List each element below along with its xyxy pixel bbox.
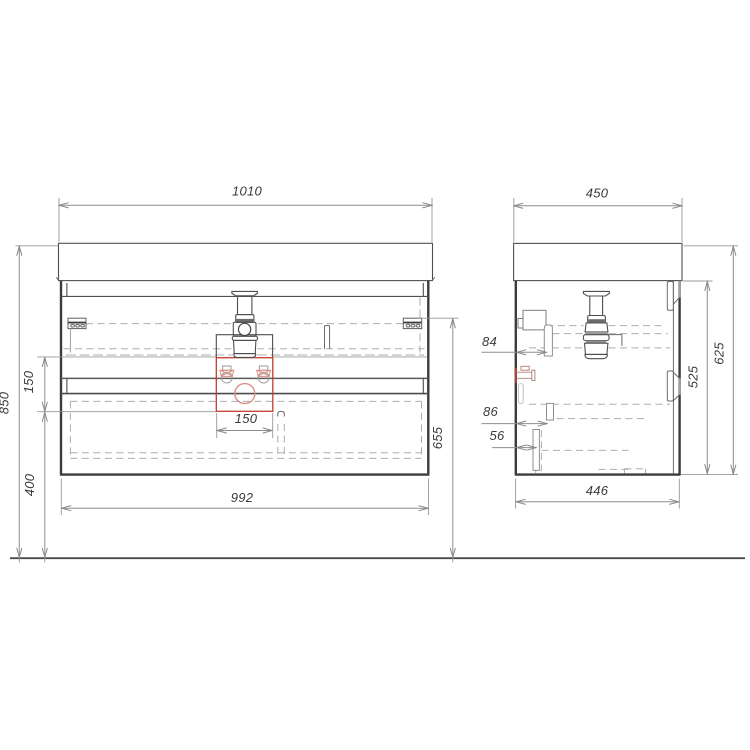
svg-text:1010: 1010 [232,184,263,199]
svg-text:655: 655 [430,426,445,449]
svg-text:84: 84 [482,334,497,349]
svg-text:450: 450 [586,186,609,201]
svg-text:150: 150 [21,370,36,393]
svg-text:850: 850 [0,391,12,414]
svg-text:525: 525 [686,365,701,388]
svg-text:56: 56 [489,428,505,443]
svg-text:400: 400 [22,473,37,496]
svg-text:86: 86 [483,404,499,419]
svg-text:150: 150 [235,411,258,426]
svg-text:446: 446 [586,483,609,498]
svg-text:992: 992 [231,490,254,505]
svg-text:625: 625 [712,342,727,365]
